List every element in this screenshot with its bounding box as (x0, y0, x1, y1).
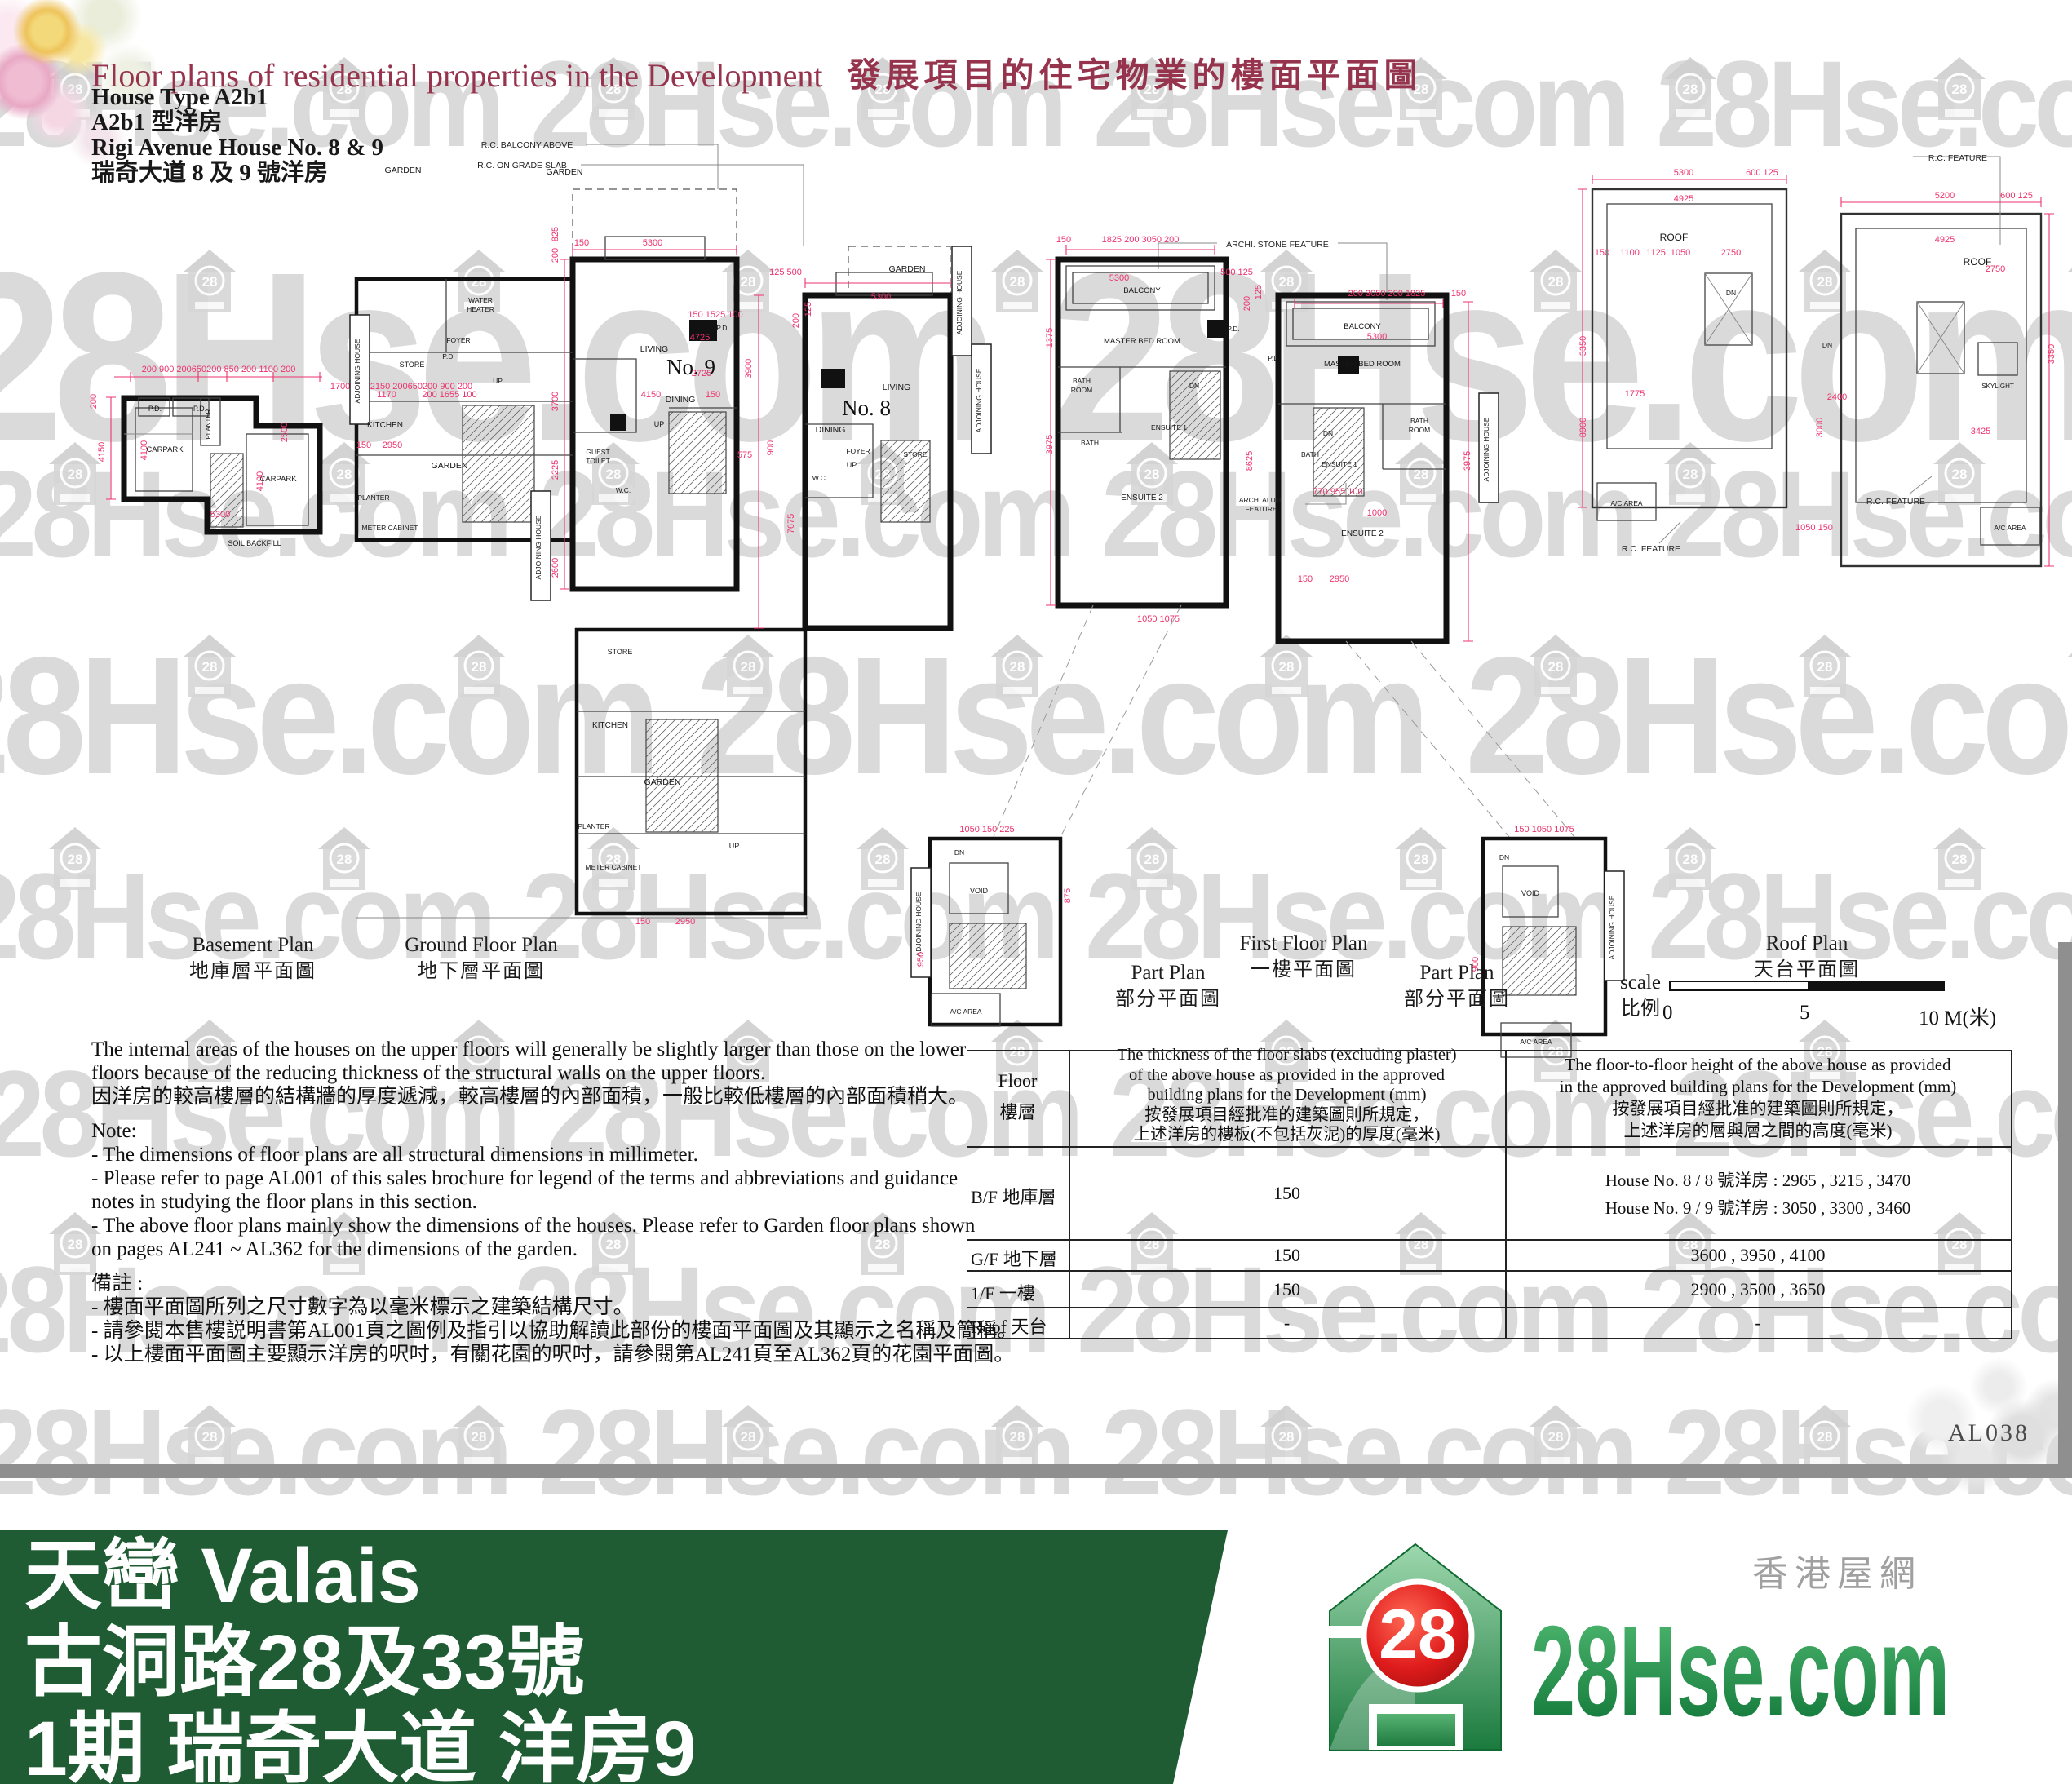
plan-label: 1170 (377, 390, 396, 400)
plan-label: A/C AREA (950, 1007, 982, 1016)
footer-address: 古洞路28及33號 (24, 1622, 584, 1703)
plan-label: 1375 (1045, 328, 1055, 348)
plan-label: ARCHI. STONE FEATURE (1226, 240, 1329, 250)
plan-label: R.C. FEATURE (1928, 153, 1987, 163)
plan-label: ENSUITE 1 (1151, 423, 1187, 432)
plan-label: FEATURE (1245, 505, 1277, 513)
plan-label: BALCONY (1344, 322, 1381, 331)
house-address-zh: 瑞奇大道 8 及 9 號洋房 (91, 161, 383, 186)
plan-label: 200 (89, 394, 99, 409)
plan-label: 200 (791, 313, 801, 328)
plan-label: A/C AREA (1994, 524, 2026, 532)
caption-ground-en: Ground Floor Plan (387, 932, 575, 958)
spec-table: Floor 樓層 The thickness of the floor slab… (967, 1044, 2014, 1342)
plan-label: 5300 (871, 292, 891, 302)
note-line: - 樓面平面圖所列之尺寸數字為以毫米標示之建築結構尺寸。 (91, 1295, 989, 1319)
plan-label: 4725 (690, 333, 710, 343)
plan-label: 200 1655 100 (422, 390, 476, 400)
plan-label: ENSUITE 2 (1341, 529, 1384, 538)
plan-label: 125 500 (769, 268, 802, 277)
table-row-height: House No. 8 / 8 號洋房 : 2965 , 3215 , 3470… (1505, 1166, 2011, 1222)
note-line: on pages AL241 ~ AL362 for the dimension… (91, 1237, 989, 1261)
plan-label: DN (1822, 341, 1832, 349)
watermark-text: 28Hse.com (0, 1391, 507, 1513)
note-heading: Note: (91, 1119, 989, 1143)
plan-label: 200 900 200650200 850 200 1100 200 (142, 365, 296, 374)
part-plan-2: DNVOIDA/C AREAADJOINING HOUSE150 1050 10… (1471, 825, 1624, 1057)
scale-tick-10: 10 M(米) (1919, 1002, 1996, 1031)
table-line (967, 1307, 2012, 1308)
house-type-zh: A2b1 型洋房 (91, 110, 383, 135)
plan-label: 5200 (1935, 191, 1955, 201)
note-line: floors because of the reducing thickness… (91, 1061, 989, 1085)
caption-roof-en: Roof Plan (1725, 930, 1888, 957)
plan-label: P.D. (1227, 325, 1239, 333)
part-plan-1: DNVOIDA/C AREAADJOINING HOUSE1050 150 22… (911, 825, 1073, 1026)
logo-wordmark: 28Hse.com (1531, 1600, 1950, 1743)
plan-label: 1775 (1625, 389, 1645, 399)
col-height-header: The floor-to-floor height of the above h… (1505, 1054, 2011, 1142)
plan-label: 2750 (1721, 248, 1741, 258)
plan-label: ENSUITE 1 (1322, 460, 1357, 468)
plan-label: R.C. FEATURE (1866, 497, 1925, 507)
table-line (967, 1338, 2012, 1339)
plan-label: 150 1050 1075 (1514, 825, 1574, 834)
plan-label: 1050 150 225 (959, 825, 1014, 834)
plan-label: R.C. FEATURE (1622, 544, 1680, 554)
table-row-thickness: 150 (1069, 1279, 1505, 1300)
plan-label: 5300 (210, 510, 230, 520)
caption-basement: Basement Plan 地庫層平面圖 (159, 932, 347, 985)
plan-label: DN (1323, 429, 1333, 437)
note-line: - 請參閱本售樓説明書第AL001頁之圖例及指引以協助解讀此部份的樓面平面圖及其… (91, 1319, 989, 1343)
note-line: - Please refer to page AL001 of this sal… (91, 1166, 989, 1190)
footer-banner: 天巒 Valais 古洞路28及33號 1期 瑞奇大道 洋房9 (0, 1530, 1232, 1784)
plan-label: ADJOINING HOUSE (534, 515, 542, 579)
plan-label: VOID (970, 887, 989, 895)
plan-label: DN (1726, 289, 1736, 297)
plan-label: 3350 (2047, 344, 2057, 364)
plan-label: MASTER BED ROOM (1324, 360, 1401, 369)
table-row-thickness: - (1069, 1313, 1505, 1334)
plan-label: 2400 (1827, 392, 1847, 402)
plan-label: BATH (1301, 450, 1319, 458)
plan-label: PLANTER (205, 409, 212, 439)
caption-roof: Roof Plan 天台平面圖 (1725, 930, 1888, 984)
plan-label: STORE (608, 648, 633, 656)
plan-label: PLANTER (357, 494, 389, 502)
page-title-zh: 發展項目的住宅物業的樓面平面圖 (847, 56, 1422, 94)
plan-label: 3350 (1578, 336, 1588, 356)
note-line: The internal areas of the houses on the … (91, 1038, 989, 1061)
plan-label: 3975 (1463, 451, 1472, 471)
caption-first-zh: 一樓平面圖 (1222, 957, 1385, 984)
plan-label: GARDEN (432, 461, 468, 471)
table-row-height: 2900 , 3500 , 3650 (1505, 1279, 2011, 1300)
plan-label: METER CABINET (586, 863, 642, 871)
basement-plan: P.D.P.D.CARPARKCARPARKPLANTERSOIL BACKFI… (89, 365, 472, 547)
plan-label: FOYER (446, 336, 470, 344)
plan-label: P.D. (148, 405, 162, 413)
house-type-en: House Type A2b1 (91, 85, 383, 110)
plan-label: 3975 (1045, 435, 1055, 454)
plan-label: FOYER (846, 447, 870, 455)
plan-label: 825 (551, 227, 560, 241)
plan-label: P.D. (442, 352, 454, 361)
plan-label: P.D. (1268, 354, 1280, 362)
note-heading-zh: 備註 : (91, 1272, 989, 1295)
plan-label: 150 (1451, 289, 1466, 299)
plan-label: SOIL BACKFILL (228, 539, 281, 547)
logo-house-icon: 28 (1328, 1544, 1501, 1750)
plan-label: P.D. (716, 324, 728, 332)
plan-label: VOID (1521, 889, 1540, 897)
plan-label: A/C AREA (1610, 499, 1643, 507)
note-line: - 以上樓面平面圖主要顯示洋房的呎吋，有關花園的呎吋，請參閱第AL241頁至AL… (91, 1343, 989, 1366)
plan-label: 4925 (1935, 235, 1955, 245)
plan-label: STORE (400, 361, 425, 369)
note-line: 因洋房的較高樓層的結構牆的厚度遞減，較高樓層的內部面積，一般比較低樓層的內部面積… (91, 1085, 989, 1109)
scale-label-en: scale (1604, 969, 1677, 996)
plan-label: ADJOINING HOUSE (914, 892, 923, 956)
caption-part-plan-2: Part Plan 部分平面圖 (1392, 959, 1522, 1013)
brochure-page: 28Hse.com28Hse.com28Hse.com28Hse.com28Hs… (0, 0, 2072, 1784)
plan-label: BATH (1081, 439, 1099, 447)
plan-label: 770 955 100 (1313, 487, 1362, 497)
table-line (967, 1270, 2012, 1272)
plan-label: 200 (551, 248, 560, 263)
caption-ground-zh: 地下層平面圖 (387, 958, 575, 985)
plan-label: No. 8 (842, 396, 891, 420)
plan-label: LIVING (640, 344, 668, 354)
caption-part2-en: Part Plan (1392, 959, 1522, 986)
plan-label: ARCH. ALUM. (1239, 496, 1283, 504)
watermark-text: 28Hse.com (538, 1391, 1070, 1513)
plan-label: 2950 (383, 440, 402, 450)
plan-label: WATER (468, 296, 493, 304)
plan-label: 8625 (1245, 451, 1255, 471)
plan-label: GUEST (586, 448, 609, 456)
caption-part2-zh: 部分平面圖 (1392, 986, 1522, 1013)
plan-label: 4150 (641, 390, 661, 400)
plan-label: BALCONY (1123, 286, 1161, 295)
plan-label: DN (1499, 853, 1509, 861)
plan-label: 150 (1056, 235, 1071, 245)
plan-label: 2950 (1330, 574, 1349, 584)
plan-label: 150 1525 100 (688, 310, 742, 320)
plan-label: 150 (1595, 248, 1609, 258)
plan-label: ROOM (1409, 426, 1430, 434)
plan-label: 4150 (97, 442, 107, 462)
plan-label: STORE (903, 450, 927, 458)
caption-part-plan-1: Part Plan 部分平面圖 (1103, 959, 1233, 1013)
plan-label: 2500 (280, 423, 290, 442)
plan-label: 4100 (139, 440, 149, 460)
caption-part1-en: Part Plan (1103, 959, 1233, 986)
plan-label: BATH (1410, 417, 1428, 425)
note-line: - The dimensions of floor plans are all … (91, 1143, 989, 1166)
table-row-height: 3600 , 3950 , 4100 (1505, 1245, 2011, 1266)
plan-label: 875 (1063, 888, 1073, 903)
plan-label: 5300 (1367, 332, 1387, 342)
plan-label: DINING (816, 425, 846, 435)
plan-label: TOILET (586, 457, 610, 465)
table-line (967, 1239, 2012, 1241)
plan-label: 150 (1298, 574, 1313, 584)
plan-label: BATH (1073, 377, 1091, 385)
plan-label: DINING (666, 395, 696, 405)
scale-bar-black (1808, 981, 1945, 991)
plan-label: UP (847, 461, 857, 469)
scale-tick-5: 5 (1800, 1002, 1810, 1025)
plan-label: 600 125 (2000, 191, 2033, 201)
plan-label: ADJOINING HOUSE (1608, 895, 1616, 959)
plan-label: 2750 (1986, 264, 2005, 274)
roof-plan: ROOFROOFA/C AREAA/C AREASKYLIGHTDNDNR.C.… (1578, 153, 2057, 566)
plan-label: 3000 (1815, 418, 1825, 437)
plan-label: CARPARK (146, 445, 184, 454)
plan-label: 950 (916, 952, 926, 967)
plan-label: 150 (706, 390, 720, 400)
plan-label: UP (729, 842, 740, 850)
plan-label: 2725 (692, 369, 711, 378)
caption-first-floor: First Floor Plan 一樓平面圖 (1222, 930, 1385, 984)
page-edge-bar-right (2058, 942, 2072, 1478)
plan-label: 1100 (1620, 248, 1640, 258)
plan-label: LIVING (883, 383, 910, 392)
plan-label: 1125 (1646, 248, 1666, 258)
plan-label: 4100 (255, 471, 265, 491)
plan-label: ENSUITE 2 (1121, 494, 1163, 502)
plan-label: 125 (1254, 285, 1264, 299)
plan-label: 3900 (744, 359, 754, 378)
plan-label: 1825 200 3050 200 (1102, 235, 1180, 245)
plan-label: UP (493, 377, 503, 385)
plan-label: 1000 (1367, 508, 1387, 518)
plan-label: UP (654, 420, 665, 428)
plan-label: KITCHEN (367, 421, 403, 430)
watermark-text: 28Hse.com (1101, 1391, 1633, 1513)
plan-label: METER CABINET (362, 524, 418, 532)
table-line (2011, 1050, 2012, 1338)
col-thickness-header: The thickness of the floor slabs (exclud… (1069, 1045, 1505, 1145)
plan-label: 200 (1242, 296, 1252, 311)
plan-label: 5300 (1674, 168, 1693, 178)
plan-label: DN (1189, 382, 1199, 390)
plan-label: 900 (766, 440, 776, 455)
plan-label: 2225 (551, 460, 560, 480)
first-floor-plan: ARCHI. STONE FEATUREARCH. ALUM.FEATUREBA… (972, 235, 1574, 837)
plan-label: GARDEN (547, 167, 583, 177)
plan-label: 1050 1075 (1137, 614, 1180, 624)
plan-label: W.C. (812, 474, 827, 482)
page-edge-bar-bottom (0, 1464, 2072, 1478)
ground-floor-plan: R.C. BALCONY ABOVER.C. ON GRADE SLABGARD… (350, 140, 972, 927)
plan-label: DN (954, 848, 964, 857)
plan-label: W.C. (616, 486, 631, 494)
plan-label: 600 125 (1746, 168, 1778, 178)
plan-label: 200 3050 200 1825 (1348, 289, 1426, 299)
plan-label: 7675 (786, 514, 796, 533)
note-line: - The above floor plans mainly show the … (91, 1214, 989, 1237)
scale-tick-0: 0 (1662, 1002, 1673, 1025)
plan-label: 125 (804, 302, 813, 317)
plan-label: GARDEN (385, 166, 422, 175)
plan-label: 5300 (643, 238, 662, 248)
plan-label: ADJOINING HOUSE (1482, 417, 1490, 481)
plan-label: 1050 (1671, 248, 1690, 258)
caption-ground: Ground Floor Plan 地下層平面圖 (387, 932, 575, 985)
caption-first-en: First Floor Plan (1222, 930, 1385, 957)
plan-label: 150 (635, 917, 650, 927)
plan-label: CARPARK (259, 475, 297, 484)
plan-label: R.C. BALCONY ABOVE (481, 140, 573, 150)
plan-label: ADJOINING HOUSE (975, 368, 983, 432)
table-row-thickness: 150 (1069, 1183, 1505, 1204)
plan-label: 150 (574, 238, 589, 248)
plan-label: 2950 (675, 917, 695, 927)
plan-label: 500 125 (1220, 268, 1253, 277)
plan-label: 575 (737, 450, 752, 460)
table-row-thickness: 150 (1069, 1245, 1505, 1266)
plan-label: 1050 150 (1795, 523, 1833, 533)
table-line (967, 1146, 2012, 1148)
house-type-block: House Type A2b1 A2b1 型洋房 Rigi Avenue Hou… (91, 85, 383, 186)
plan-label: 150 (356, 440, 371, 450)
house-address-en: Rigi Avenue House No. 8 & 9 (91, 135, 383, 161)
28hse-logo: 28 28Hse.com (1301, 1538, 2072, 1782)
footer-development-name: 天巒 Valais (24, 1535, 421, 1617)
table-row-height: - (1505, 1313, 2011, 1334)
plan-label: 3700 (551, 392, 560, 411)
plan-label: ROOM (1071, 386, 1092, 394)
scale-bar-white (1669, 981, 1809, 991)
caption-basement-zh: 地庫層平面圖 (159, 958, 347, 985)
plan-label: 5300 (1109, 273, 1129, 283)
caption-part1-zh: 部分平面圖 (1103, 986, 1233, 1013)
plan-label: GARDEN (889, 264, 926, 274)
plan-label: ADJOINING HOUSE (955, 270, 963, 334)
plan-label: ADJOINING HOUSE (353, 339, 361, 403)
col-floor-header: Floor 樓層 (967, 1070, 1069, 1124)
plan-label: KITCHEN (592, 721, 628, 730)
notes-block: The internal areas of the houses on the … (91, 1038, 989, 1366)
plan-label: 2600 (551, 558, 560, 578)
plan-label: 3425 (1971, 427, 1990, 436)
plan-label: 4925 (1674, 194, 1693, 204)
caption-basement-en: Basement Plan (159, 932, 347, 958)
page-number: AL038 (1948, 1419, 2030, 1447)
plan-label: 8900 (1578, 418, 1588, 437)
plan-label: SKYLIGHT (1981, 383, 2014, 390)
plan-label: HEATER (467, 305, 494, 313)
logo-badge-28: 28 (1379, 1596, 1457, 1674)
plan-label: GARDEN (644, 777, 681, 787)
plan-label: MASTER BED ROOM (1104, 337, 1180, 346)
note-line: notes in studying the floor plans in thi… (91, 1190, 989, 1214)
footer-phase-house: 1期 瑞奇大道 洋房9 (24, 1708, 696, 1784)
plan-label: PLANTER (578, 822, 609, 830)
logo-tagline: 香港屋網 (1752, 1544, 1922, 1596)
plan-label: ROOF (1660, 232, 1689, 243)
